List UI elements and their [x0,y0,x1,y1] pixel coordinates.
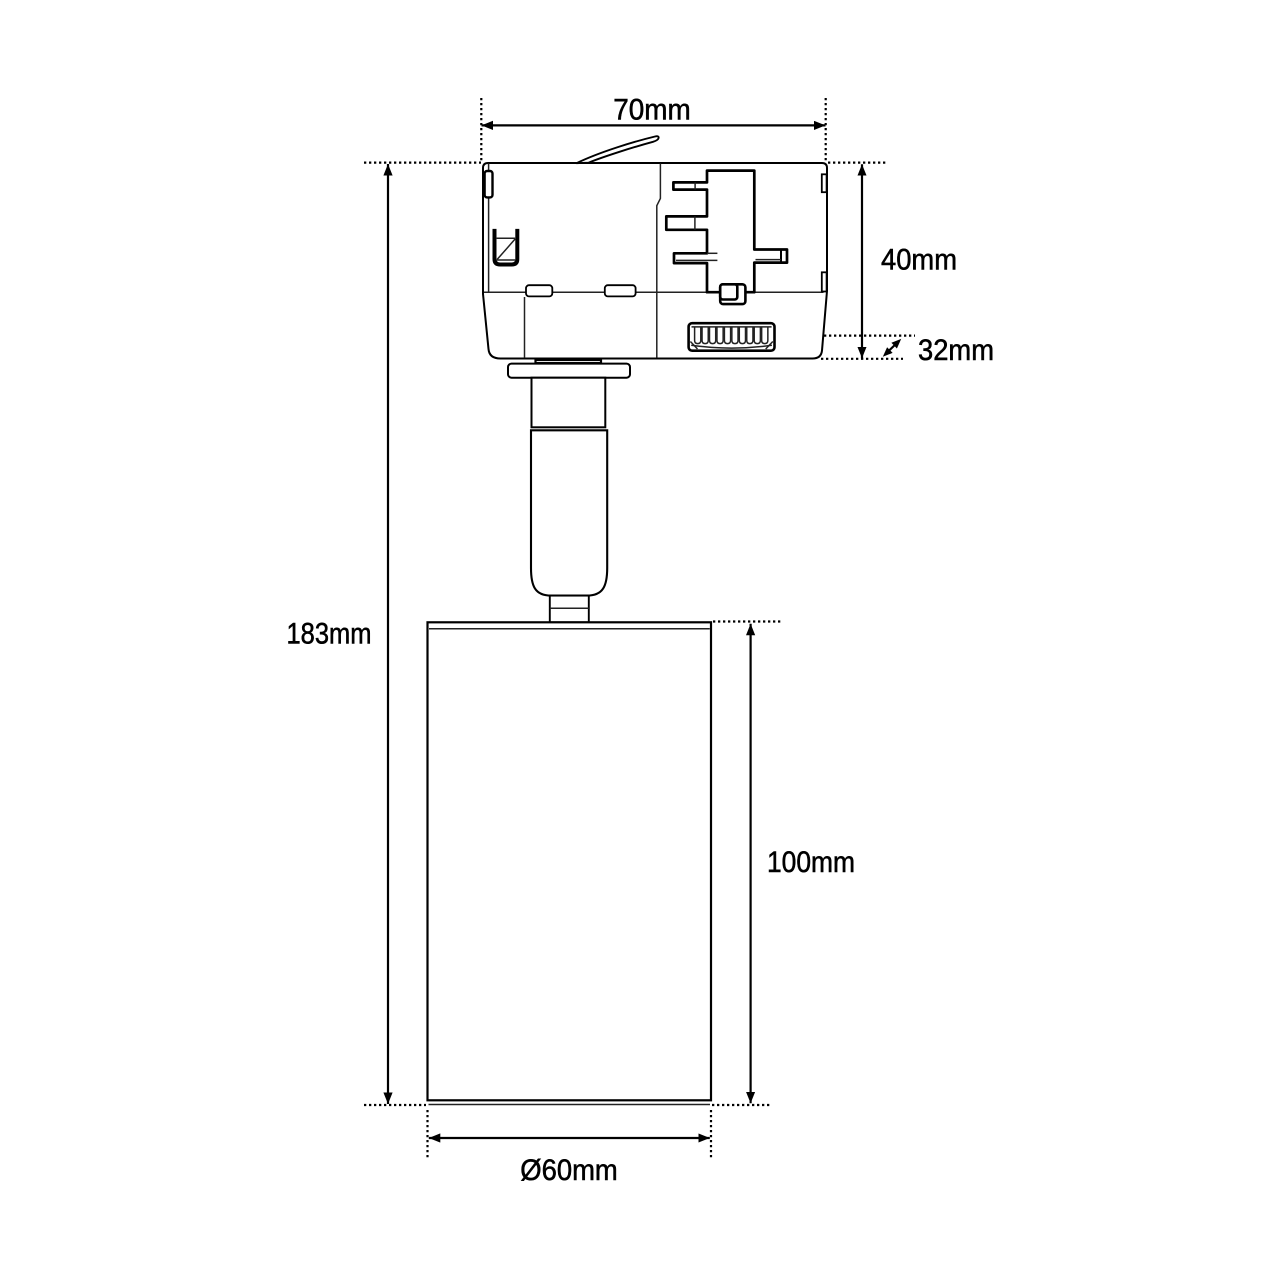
svg-text:183mm: 183mm [287,618,372,651]
svg-text:40mm: 40mm [881,244,957,277]
svg-text:32mm: 32mm [918,334,994,367]
svg-text:Ø60mm: Ø60mm [520,1154,618,1187]
svg-text:70mm: 70mm [613,94,691,127]
svg-text:100mm: 100mm [767,846,855,879]
